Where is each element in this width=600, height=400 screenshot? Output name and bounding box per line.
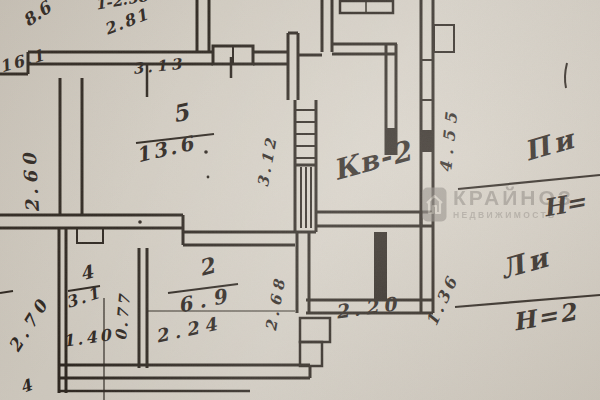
dimension-label: 2.60 xyxy=(21,148,42,213)
height-annotation: Н= xyxy=(541,190,587,221)
scanned-floor-plan: КРАЙНОЗ НЕДВИЖИМОСТЬ 8.6 16.1 1-2.58 2.8… xyxy=(0,0,600,400)
dimension-label: 0.77 xyxy=(114,292,133,342)
